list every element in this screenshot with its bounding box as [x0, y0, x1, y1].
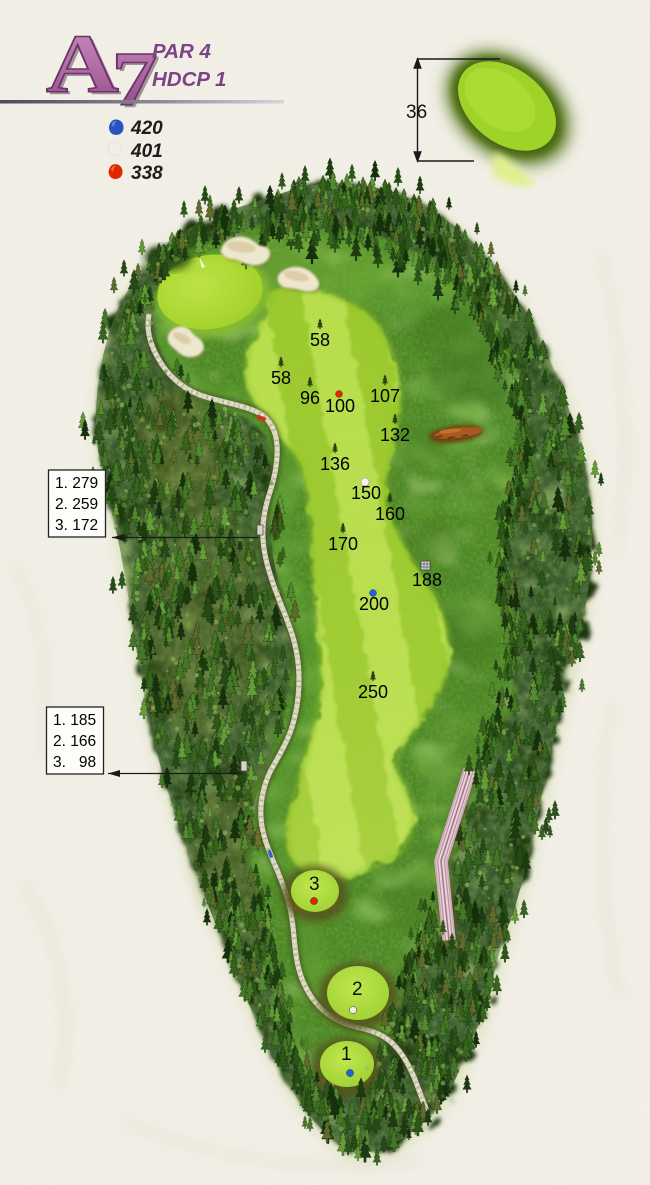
svg-text:2. 166: 2. 166: [53, 733, 96, 750]
svg-text:136: 136: [320, 454, 350, 474]
svg-text:250: 250: [358, 682, 388, 702]
svg-text:170: 170: [328, 534, 358, 554]
svg-text:150: 150: [351, 483, 381, 503]
svg-text:420: 420: [130, 118, 163, 139]
svg-text:401: 401: [130, 141, 163, 162]
svg-text:160: 160: [375, 504, 405, 524]
svg-text:2: 2: [352, 979, 363, 1000]
svg-text:200: 200: [359, 594, 389, 614]
svg-text:2. 259: 2. 259: [55, 496, 98, 513]
svg-text:107: 107: [370, 386, 400, 406]
svg-text:338: 338: [131, 163, 163, 184]
svg-text:36: 36: [406, 102, 427, 123]
svg-text:PAR 4: PAR 4: [152, 40, 211, 63]
svg-text:1. 185: 1. 185: [53, 712, 96, 729]
svg-text:188: 188: [412, 570, 442, 590]
svg-text:100: 100: [325, 396, 355, 416]
svg-text:58: 58: [310, 330, 330, 350]
svg-text:1: 1: [341, 1044, 352, 1065]
svg-text:96: 96: [300, 388, 320, 408]
svg-text:1. 279: 1. 279: [55, 475, 98, 492]
svg-text:58: 58: [271, 368, 291, 388]
svg-text:3. 98: 3. 98: [53, 754, 96, 771]
svg-text:3. 172: 3. 172: [55, 517, 98, 534]
svg-text:HDCP 1: HDCP 1: [152, 68, 226, 91]
svg-text:132: 132: [380, 425, 410, 445]
svg-text:3: 3: [309, 874, 320, 895]
